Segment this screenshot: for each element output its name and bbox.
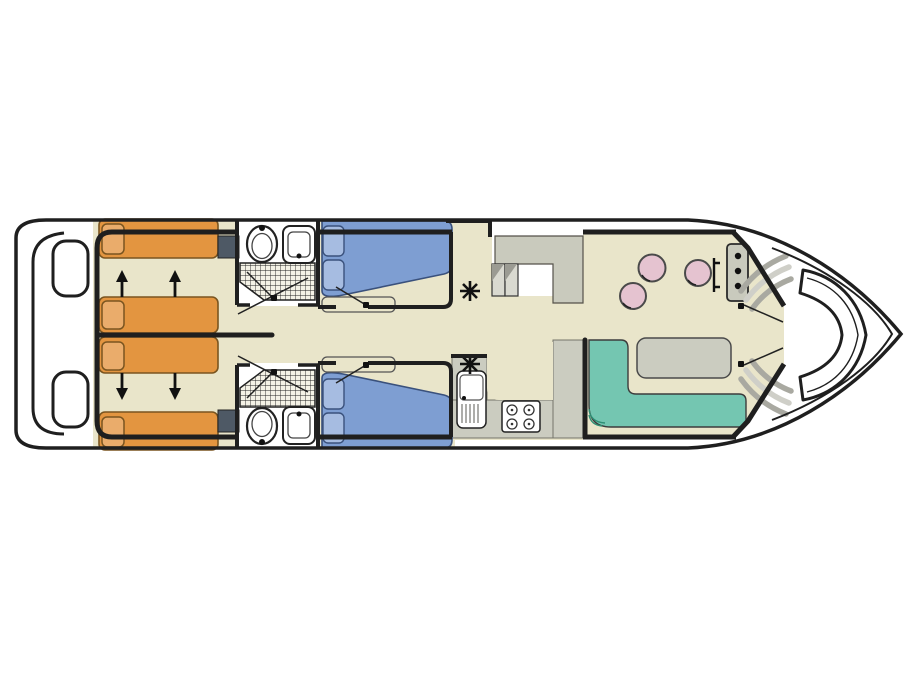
counter-right — [553, 340, 583, 438]
boat-floor-plan — [0, 0, 915, 686]
faucet-dot — [462, 396, 466, 400]
door-pivot — [363, 362, 369, 368]
door-pivot — [738, 361, 744, 367]
foot-bench — [322, 297, 395, 312]
pillow — [102, 342, 124, 370]
round-stool — [639, 255, 666, 282]
galley-floor-inset — [487, 342, 553, 400]
washbasin-icon — [283, 226, 315, 263]
pillow — [102, 224, 124, 254]
door-pivot — [271, 295, 277, 301]
pillow — [323, 260, 344, 290]
salon-table — [637, 338, 731, 378]
landing-steps — [492, 264, 518, 296]
gauge-dots — [735, 253, 741, 289]
washbasin-icon — [283, 407, 315, 444]
door-pivot — [738, 303, 744, 309]
pillow — [323, 379, 344, 409]
door-pivot — [363, 302, 369, 308]
door-pivot — [271, 369, 277, 375]
boarding-pad — [53, 241, 88, 296]
boarding-pad — [53, 372, 88, 427]
pillow — [102, 417, 124, 447]
floor-plan-canvas — [0, 0, 915, 686]
toilet-icon — [247, 225, 277, 262]
stove-icon — [502, 401, 540, 432]
galley-sink — [457, 371, 486, 428]
toilet-icon — [247, 408, 277, 445]
pillow — [102, 301, 124, 329]
